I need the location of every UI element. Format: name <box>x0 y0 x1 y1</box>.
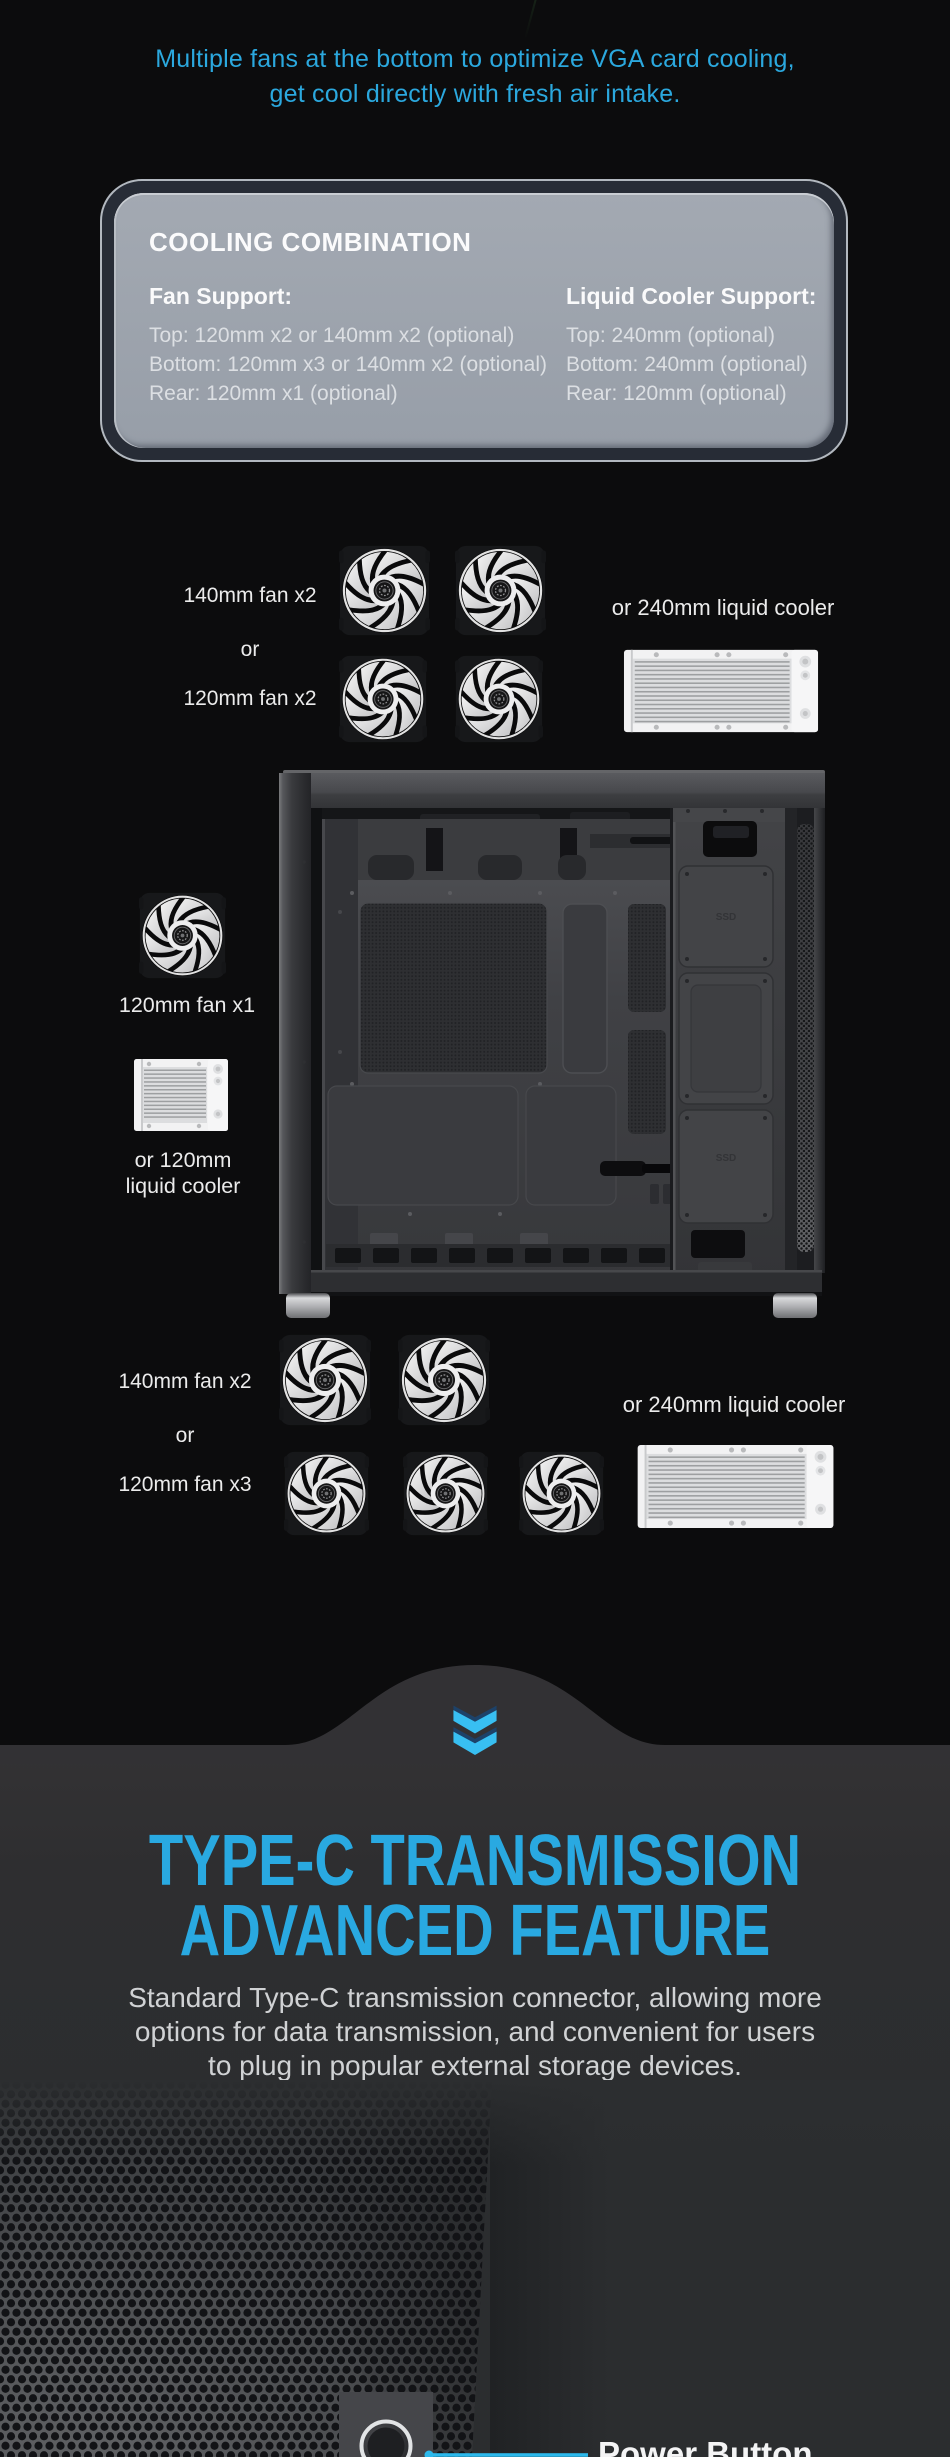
svg-text:SSD: SSD <box>716 1153 737 1164</box>
svg-text:SSD: SSD <box>716 912 737 923</box>
